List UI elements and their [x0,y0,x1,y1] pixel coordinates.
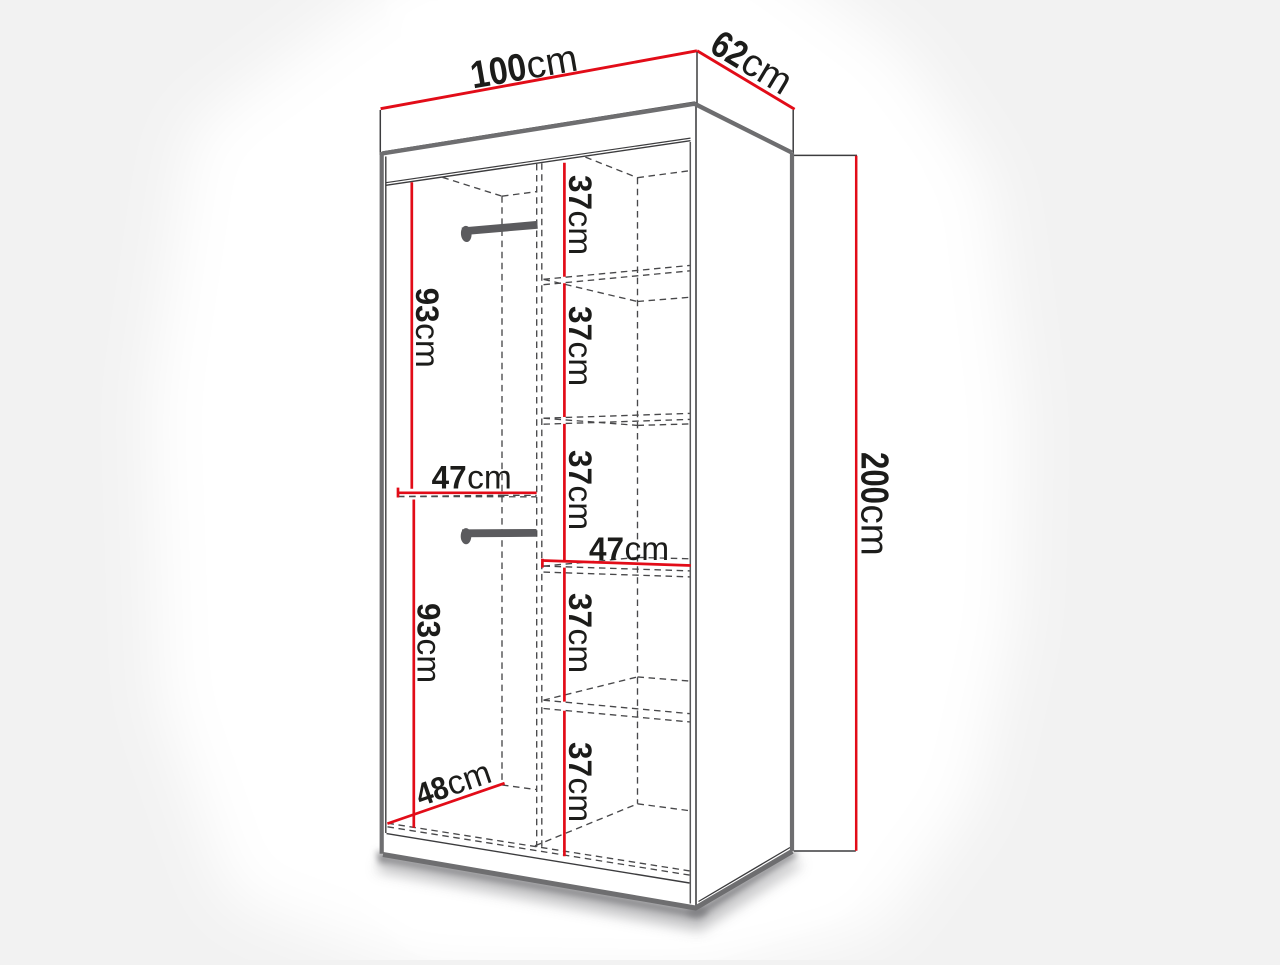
svg-text:cm: cm [467,460,512,497]
svg-text:cm: cm [625,531,670,568]
svg-text:93: 93 [410,603,446,638]
svg-text:cm: cm [561,211,598,256]
svg-text:cm: cm [561,486,598,531]
svg-text:93: 93 [409,288,445,323]
svg-text:cm: cm [561,778,598,823]
svg-text:37: 37 [562,593,598,628]
svg-text:37: 37 [562,742,598,777]
svg-text:47: 47 [432,459,467,495]
svg-text:37: 37 [562,175,598,210]
svg-text:47: 47 [589,531,624,567]
svg-text:cm: cm [561,342,598,387]
svg-text:cm: cm [852,505,895,556]
svg-text:cm: cm [410,639,447,684]
svg-text:cm: cm [408,323,445,368]
svg-text:37: 37 [562,306,598,341]
svg-text:cm: cm [561,629,598,674]
svg-text:37: 37 [562,450,598,485]
svg-text:cm: cm [523,37,581,88]
svg-text:200: 200 [853,452,896,504]
